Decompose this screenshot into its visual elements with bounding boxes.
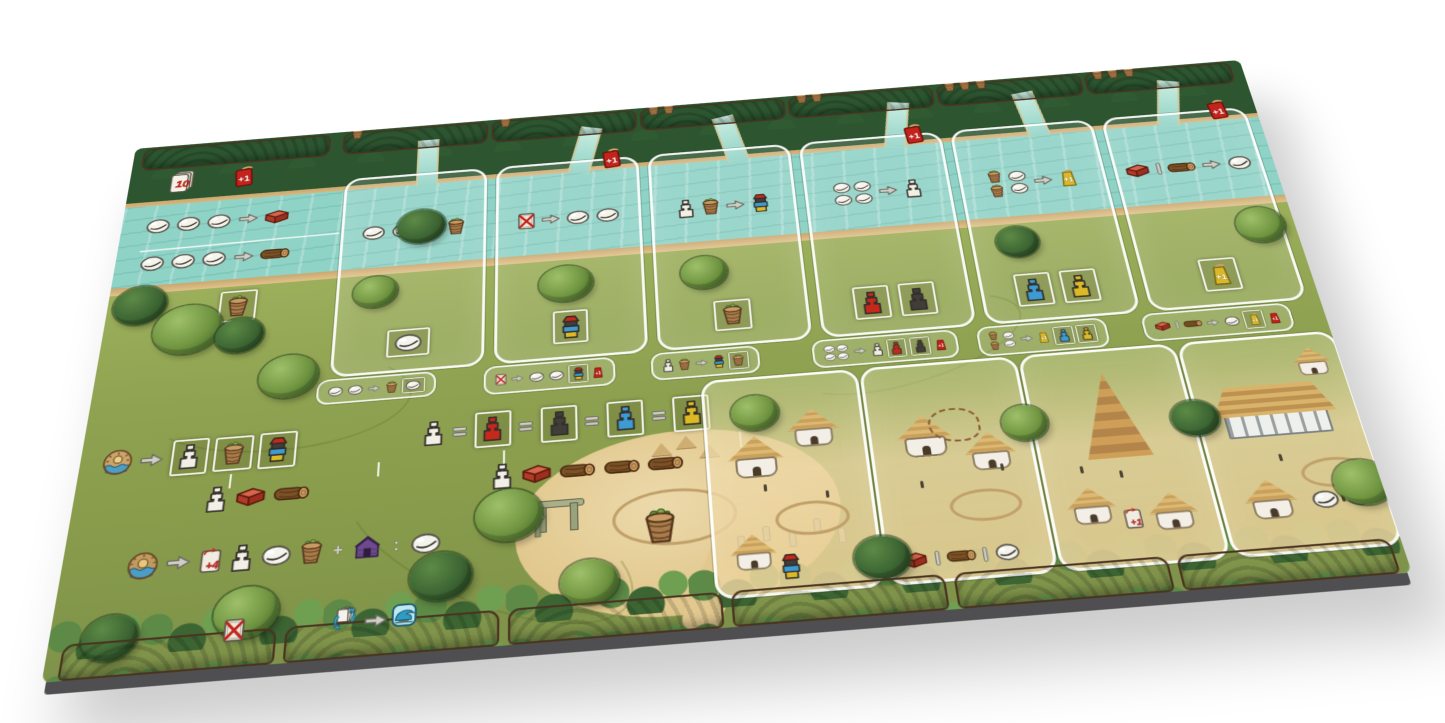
basket-icon [985,169,1003,184]
action-cost-reward [498,203,638,233]
yellow-plus-tag-icon: +1 [1035,329,1051,343]
slot-frame [568,363,588,383]
statue-blue-icon [613,404,637,432]
basket-icon [1119,65,1136,77]
statue-white-icon [227,542,254,572]
slot-frame [908,336,930,355]
statue-black-icon [547,409,571,437]
basket-icon [794,92,809,104]
shell-disc-icon [852,180,873,193]
yellow-plus-tag-icon: +1 [1205,261,1235,286]
basket-group [987,330,1001,351]
sun-wave-medallion-icon [124,550,160,581]
equals-icon [583,413,600,427]
log-icon [258,245,290,261]
statue-red-icon [889,340,903,354]
basket-icon [224,293,251,317]
equals-icon [517,419,534,433]
shell-disc-icon [822,344,836,353]
statue-black-icon [912,338,926,352]
flood-icon [391,602,417,627]
village-2-icons [900,542,1022,570]
arrow-icon [510,373,524,383]
storage-slots [333,323,481,362]
slot-frame: +1 [1241,309,1267,328]
village-1-icons [778,551,803,580]
statue-red-icon [481,415,505,443]
red-plus-tag-icon: +1 [932,337,947,351]
basket-icon [1089,68,1105,80]
round-hut [1144,490,1202,531]
slot-frame [473,410,510,448]
storage-slots [980,265,1134,309]
shell-disc-icon [405,379,422,391]
basket-icon [988,183,1006,198]
draw-card-icon: +1 [1121,506,1147,530]
shell-disc-icon [138,254,166,272]
storage-slots: +1 [1141,252,1299,296]
shell-disc-icon [409,531,442,555]
discard-marker [221,616,247,644]
round-hut [1288,346,1335,376]
or-divider-icon [1153,161,1163,175]
yellow-plus-tag-icon: +1 [1245,312,1262,326]
shell-disc-icon [528,371,544,383]
statue-white-icon [869,342,883,356]
brick-icon [520,461,552,485]
slot-frame [606,399,644,437]
shell-disc-icon [595,206,620,222]
shell-disc-icon [1222,315,1241,326]
round-hut [1062,485,1119,526]
arrow-icon [1018,333,1033,343]
action-column-3 [647,143,812,351]
mound [675,434,696,448]
day-setup-row [99,430,297,481]
statue-white-icon [901,178,923,198]
statue-white-icon [421,419,445,447]
shell-disc-icon [833,193,854,206]
yellow-plus-tag-icon: +1 [1056,168,1080,188]
shell-disc-icon [200,249,228,267]
arrow-icon [724,197,746,211]
basket-icon [661,102,675,114]
svg-text:+1: +1 [1063,175,1074,183]
statue-yellow-icon [1079,326,1094,340]
ancestor-stack-icon [750,192,771,212]
arrow-icon [1205,317,1221,327]
statue-white-icon [676,198,696,218]
ancestor-stack-icon [571,366,584,380]
brick-icon [1122,162,1152,179]
tall-tower [1061,370,1161,460]
card-deck-icon: 10 [167,169,196,194]
storage-slots [658,293,807,335]
purple-hut-icon [351,534,382,560]
statue-yellow-icon [679,399,704,427]
shell-disc-icon [853,192,874,205]
action-cost-reward [1115,153,1261,179]
arrow-icon [137,450,165,469]
discard-card-icon [494,372,506,386]
brick-icon [233,484,268,508]
svg-text:10: 10 [174,177,190,189]
svg-text:+1: +1 [937,342,944,347]
shell-disc-group [1001,331,1017,348]
log-icon [1182,318,1204,329]
slot-frame [1012,272,1054,307]
tab-basket-capacity [646,102,675,116]
shell-disc-icon [823,353,837,362]
ancestor-stack-icon [264,435,290,463]
svg-text:+4: +4 [204,559,218,571]
shell-disc-icon [835,343,849,352]
statue-blue-icon [1020,276,1047,301]
column-bonus-tag: +1 [900,122,927,145]
shell-disc-icon [169,252,197,270]
basket-icon [956,79,972,91]
shell-disc-icon [1224,154,1253,170]
svg-text:+1: +1 [1129,517,1142,528]
slot-frame [1051,325,1074,344]
slot-frame [386,327,430,357]
basket-storage-slot [217,289,258,323]
slot-frame [257,430,298,469]
photo-backdrop: +1 +1 +1 +1 +1 +1 +1 +1 +1+1 10+1 [0,0,1445,723]
statue-blue-icon [1056,328,1071,342]
statue-white-icon [176,442,203,470]
central-basket [641,506,679,546]
tab-basket-capacity [498,115,511,128]
shell-disc-icon [1003,339,1017,348]
flood-income-row: +4+: [124,527,442,581]
basket-icon [809,90,824,102]
round-hut [726,434,786,480]
shell-disc-icon [360,224,385,241]
basket-icon [677,357,691,370]
arrow-icon [540,212,561,226]
shell-disc-icon [548,369,564,381]
equals-icon [649,408,666,422]
slot-frame [1075,323,1099,342]
or-divider-icon [980,545,990,562]
tab-basket-capacity [941,77,987,92]
storage-slots [819,278,971,322]
shell-disc-icon [205,212,232,229]
basket-icon [641,506,679,546]
arrow-icon [852,345,867,355]
action-cost-reward: +1 [960,161,1106,200]
shell-disc-group [1006,170,1030,195]
tab-basket-capacity [350,127,364,140]
log-icon [602,456,640,477]
shell-disc-icon [831,181,852,194]
basket-icon [384,380,398,393]
basket-icon [297,538,325,566]
basket-icon [972,77,988,89]
log-icon [1165,159,1198,174]
shell-disc-icon [565,208,590,224]
basket-icon [445,216,465,235]
shell-disc-icon [175,214,203,231]
game-board: +1 +1 +1 +1 +1 +1 +1 +1 +1+1 10+1 [41,60,1411,683]
basket-icon [731,353,745,366]
slot-frame [168,437,210,476]
village-circle [947,485,1025,523]
arrow-icon [1199,157,1223,171]
shell-disc-group [822,343,850,362]
column-bonus-tag: +1 [599,146,623,169]
basket-group [985,169,1006,198]
log-icon [559,459,597,480]
red-bonus-card-icon: +1 [900,122,927,145]
shell-disc-icon [144,217,172,234]
slot-frame [552,309,588,344]
basket-icon [219,440,246,466]
shell-disc-icon [993,542,1022,562]
plus-icon: + [329,538,346,561]
action-cost-reward [806,174,949,208]
statue-white-icon [202,484,229,513]
slot-frame [713,297,752,330]
slot-frame [897,281,938,316]
arrow-icon [231,248,254,263]
action-column-1 [329,167,487,377]
basket-icon [720,302,745,326]
column-3-strip [650,344,761,380]
reshuffle-cards-icon [328,605,360,633]
shell-disc-icon [327,385,344,397]
tab-basket-capacity [1089,65,1136,80]
statue-red-icon [859,289,885,314]
svg-text:+1: +1 [1040,335,1048,340]
slot-frame [1058,268,1101,303]
slot-frame [885,338,907,358]
svg-text::: : [392,536,398,554]
shell-disc-icon [259,543,293,567]
village-circle [773,497,851,537]
ancestor-stack-icon [778,551,803,580]
log-icon [646,452,684,473]
tab-basket-capacity [794,90,824,104]
statue-white-icon [661,358,674,372]
discard-card-icon [516,211,535,231]
slot-frame [217,289,258,323]
round-hut [785,406,840,447]
colon-icon: : [387,534,403,557]
basket-icon [498,115,511,128]
arrow-icon [1031,173,1054,187]
statue-white-icon [490,461,514,490]
storage-slots [497,304,645,348]
ancestor-stack-icon [559,313,582,339]
arrow-icon [362,610,388,630]
day-setup-materials [202,478,311,514]
round-hut [728,532,778,571]
red-bonus-card-icon: +1 [231,164,257,188]
slot-frame [212,435,254,472]
slot-frame [851,285,891,320]
shell-disc-icon [393,332,423,353]
shell-disc-icon [1006,170,1027,183]
or-divider-icon [932,549,942,566]
basket-icon [350,127,364,140]
basket-icon [646,104,660,116]
discard-card-icon [221,616,247,644]
action-column-2: +1 [493,155,647,364]
arrow-icon [367,383,381,393]
shell-disc-icon [1001,331,1015,340]
arrow-icon [876,183,898,197]
equals-icon [451,424,468,438]
round-hut [1239,477,1302,520]
red-bonus-card-icon: +1 [599,146,623,169]
shell-disc-icon [347,383,364,395]
arrow-icon [236,211,259,225]
log-icon [272,482,311,503]
svg-text:+1: +1 [595,370,602,375]
arrow-icon [694,358,708,368]
slot-frame [401,376,425,393]
basket-icon [989,340,1001,350]
longhouse [1206,379,1343,439]
basket-icon [1104,67,1120,79]
arrow-icon [163,552,192,572]
shell-disc-icon [836,351,850,360]
basket-icon [987,330,999,340]
brick-icon [263,207,291,225]
slot-frame: +1 [1197,257,1243,292]
action-cost-reward [652,190,794,220]
or-divider-icon [1173,320,1180,330]
log-icon [944,547,977,565]
sun-medallion-icon [100,448,135,477]
slot-frame [540,404,577,442]
red-plus-tag-icon: +1 [1266,310,1283,324]
village-3-icons: +1 [1121,506,1147,530]
basket-icon [700,197,721,216]
shell-disc-group [831,180,874,206]
bonus-card-icon: +4 [196,545,223,574]
basket-icon [941,80,957,92]
connector [376,462,379,476]
statue-black-icon [904,286,930,311]
svg-text:+: + [332,540,343,558]
statue-yellow-icon [1066,273,1094,298]
slot-frame [727,350,749,369]
red-plus-tag-icon: +1 [591,364,604,378]
shell-disc-icon [1008,182,1030,195]
ancestor-stack-icon [712,354,725,368]
brick-icon [1152,320,1172,332]
